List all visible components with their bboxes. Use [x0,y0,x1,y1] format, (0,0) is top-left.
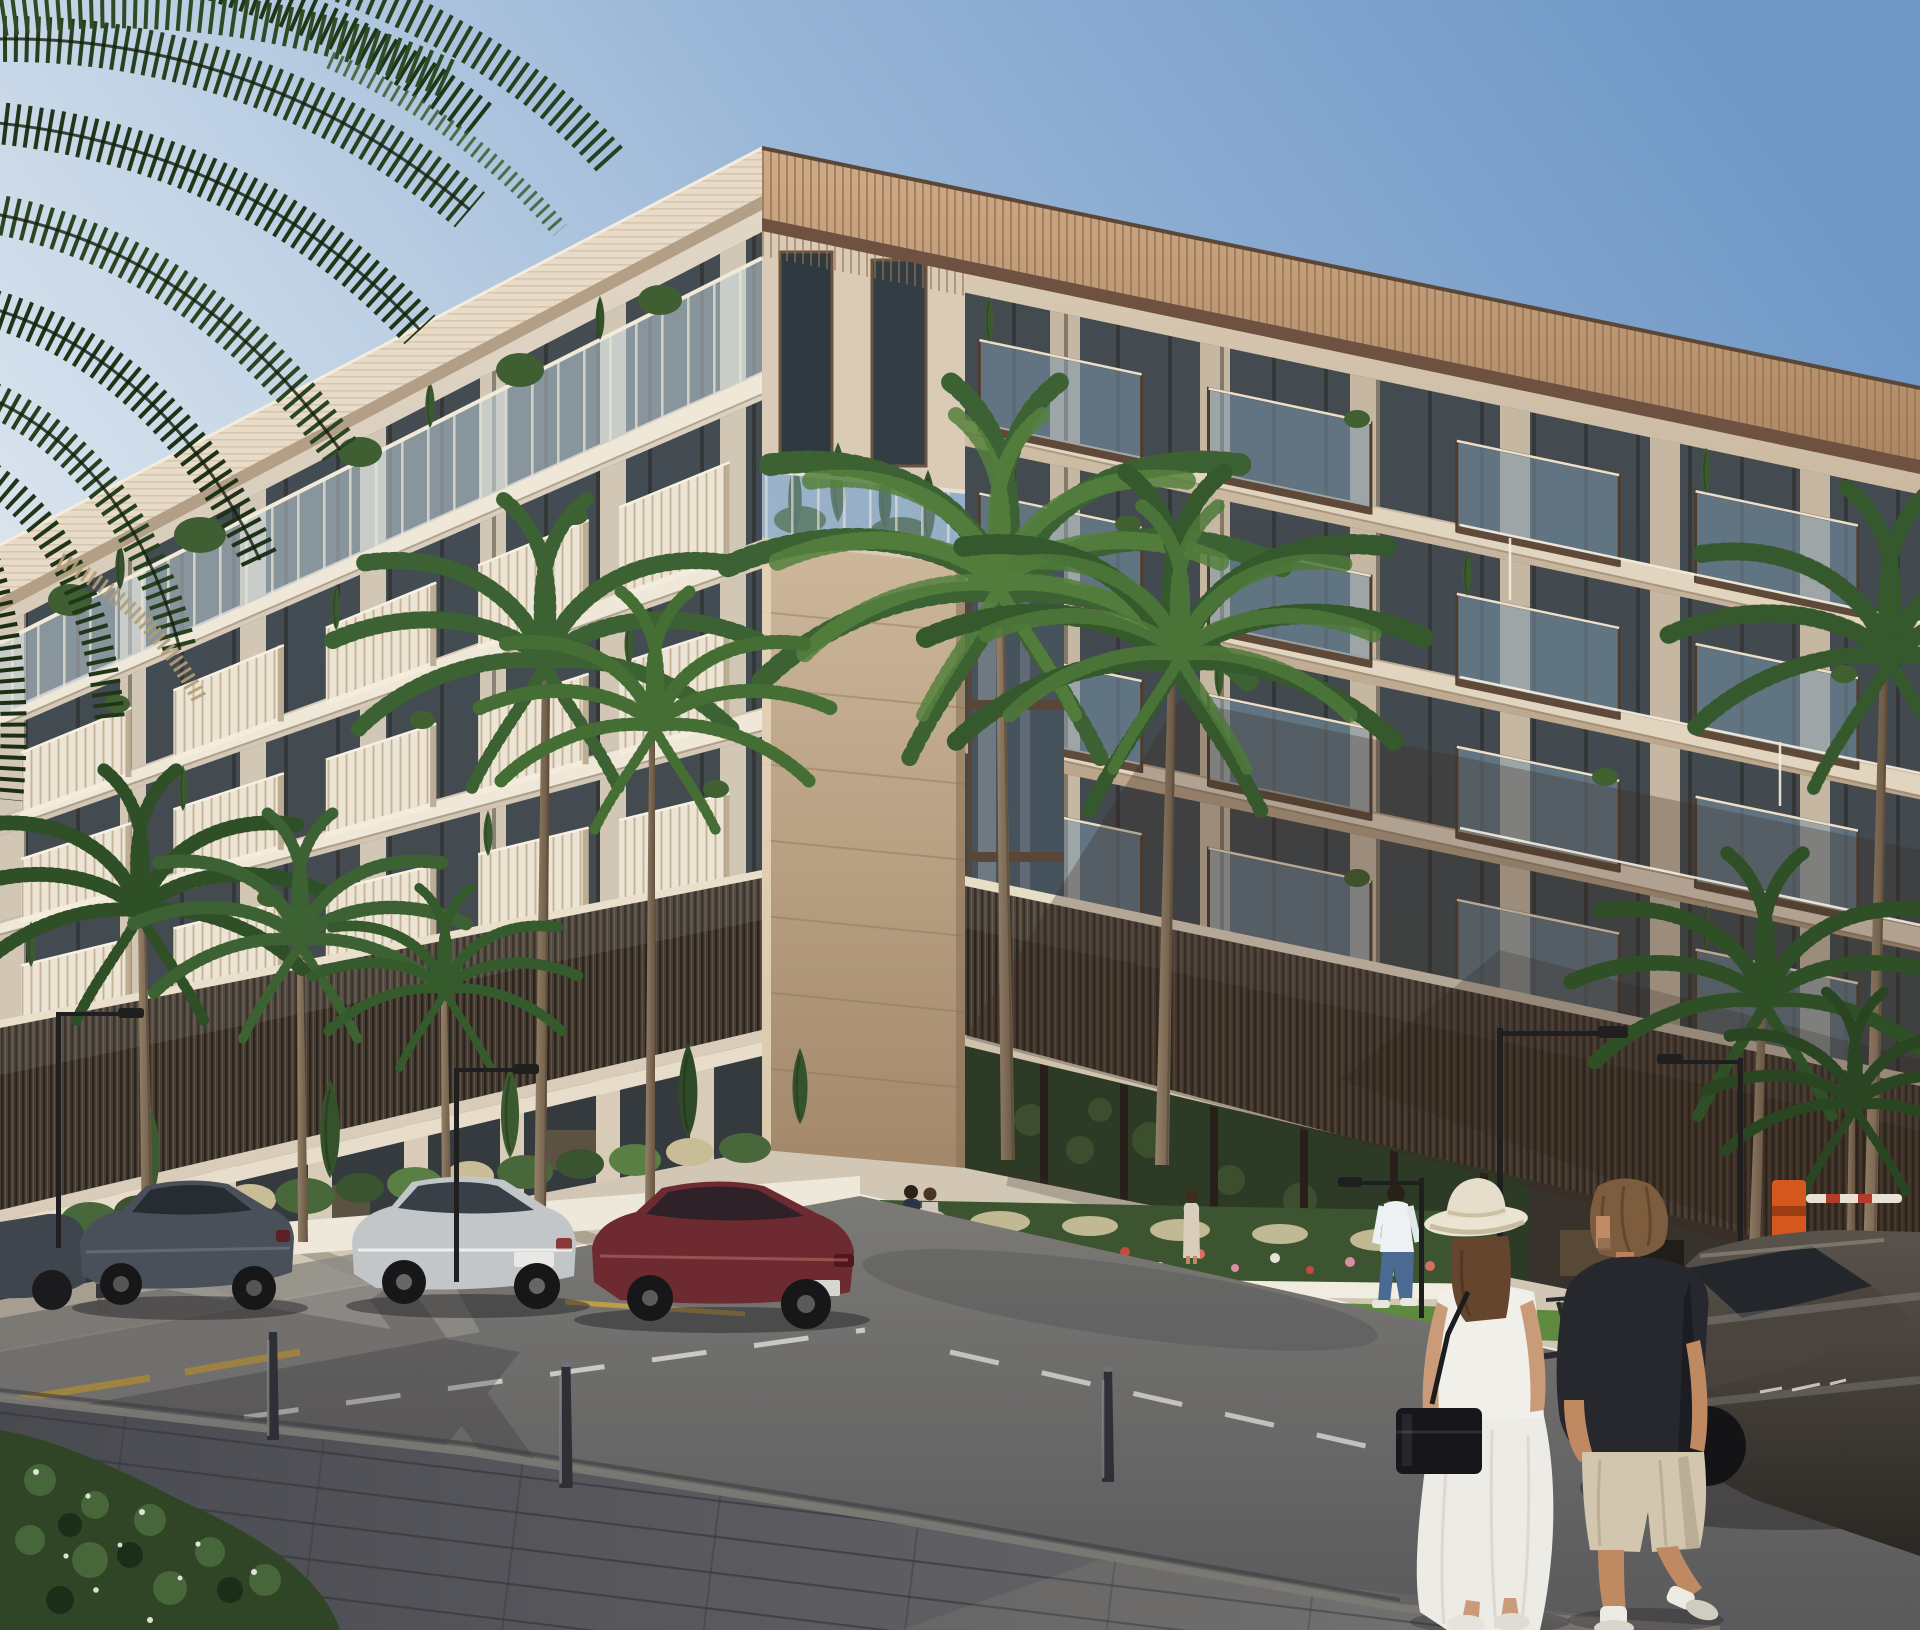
balcony-plant [1592,768,1618,786]
balcony-plant [1831,665,1857,683]
balcony-plant [409,711,435,729]
balcony-plant [703,780,729,798]
balcony-plant [1344,410,1370,428]
rendering-scene [0,0,1920,1630]
